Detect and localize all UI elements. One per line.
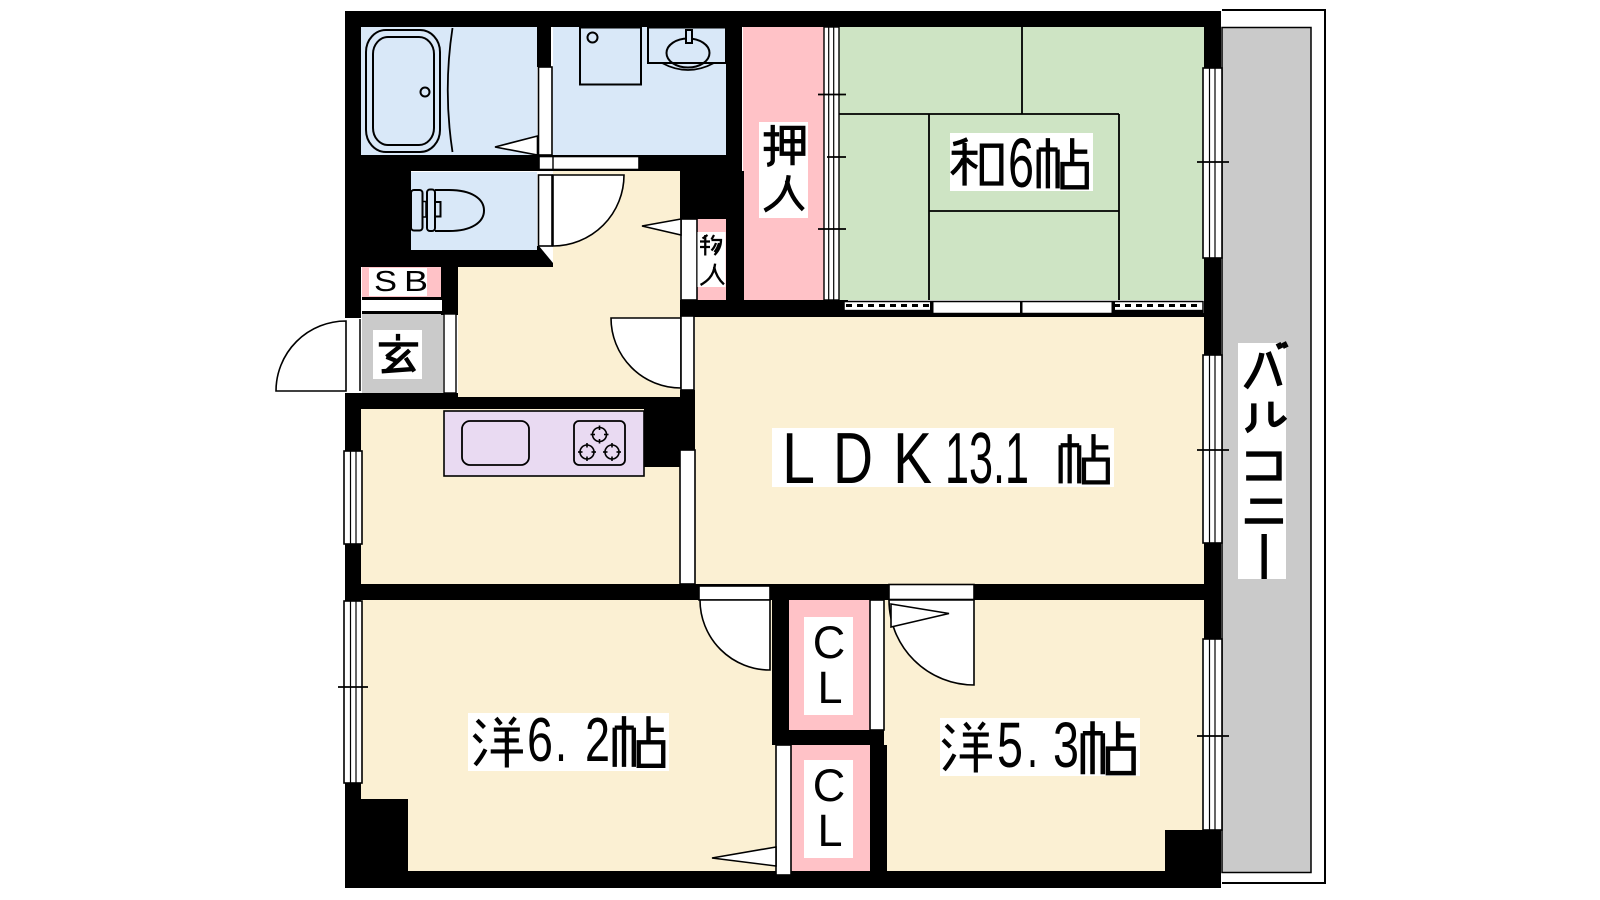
- svg-text:6: 6: [1008, 124, 1034, 202]
- svg-text:.: .: [555, 706, 567, 775]
- svg-text:C: C: [813, 617, 846, 668]
- svg-text:D: D: [833, 419, 873, 499]
- svg-text:S: S: [374, 266, 397, 298]
- svg-text:L: L: [817, 805, 842, 856]
- svg-text:L: L: [782, 419, 815, 499]
- svg-text:C: C: [813, 760, 846, 811]
- svg-text:K: K: [893, 419, 932, 499]
- svg-text:B: B: [404, 266, 428, 298]
- svg-text:13.1: 13.1: [945, 419, 1029, 499]
- svg-text:L: L: [817, 662, 842, 713]
- svg-text:5: 5: [997, 709, 1023, 781]
- svg-text:2: 2: [585, 706, 610, 775]
- svg-text:6: 6: [527, 706, 553, 775]
- svg-text:3: 3: [1053, 709, 1079, 781]
- svg-text:.: .: [1027, 709, 1038, 781]
